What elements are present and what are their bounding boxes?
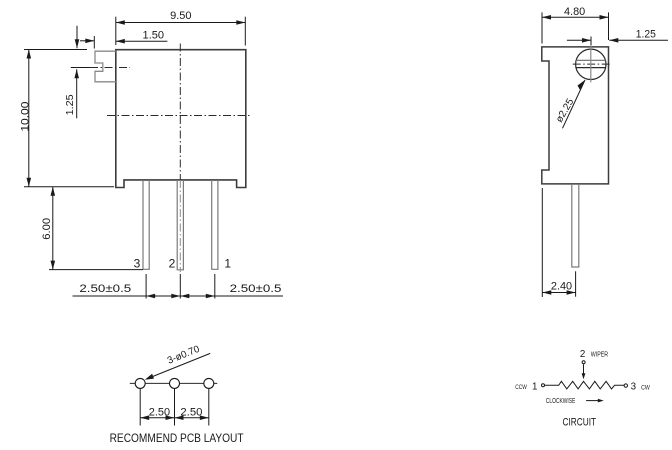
svg-text:RECOMMEND PCB LAYOUT: RECOMMEND PCB LAYOUT xyxy=(110,431,245,445)
svg-text:6.00: 6.00 xyxy=(41,218,53,240)
svg-text:2.50: 2.50 xyxy=(180,407,202,419)
svg-text:1.25: 1.25 xyxy=(636,28,656,40)
svg-text:2.50: 2.50 xyxy=(149,407,170,419)
svg-text:CW: CW xyxy=(641,385,650,392)
svg-text:CLOCKWISE: CLOCKWISE xyxy=(546,398,576,405)
svg-text:2.50±0.5: 2.50±0.5 xyxy=(79,283,131,295)
svg-text:4.80: 4.80 xyxy=(564,6,585,18)
svg-text:WIPER: WIPER xyxy=(591,351,608,358)
svg-text:1: 1 xyxy=(532,381,537,392)
svg-text:2.40: 2.40 xyxy=(551,281,572,293)
svg-text:3: 3 xyxy=(631,382,637,393)
svg-text:3: 3 xyxy=(134,256,141,270)
svg-text:9.50: 9.50 xyxy=(170,10,192,22)
svg-text:2.50±0.5: 2.50±0.5 xyxy=(230,283,282,295)
svg-text:2: 2 xyxy=(169,256,176,270)
svg-text:10.00: 10.00 xyxy=(20,101,32,131)
svg-text:1.50: 1.50 xyxy=(143,30,165,42)
svg-text:CCW: CCW xyxy=(515,384,527,391)
svg-text:1: 1 xyxy=(224,256,231,270)
svg-text:CIRCUIT: CIRCUIT xyxy=(563,417,597,429)
svg-text:1.25: 1.25 xyxy=(65,94,76,115)
svg-text:2: 2 xyxy=(580,349,585,360)
